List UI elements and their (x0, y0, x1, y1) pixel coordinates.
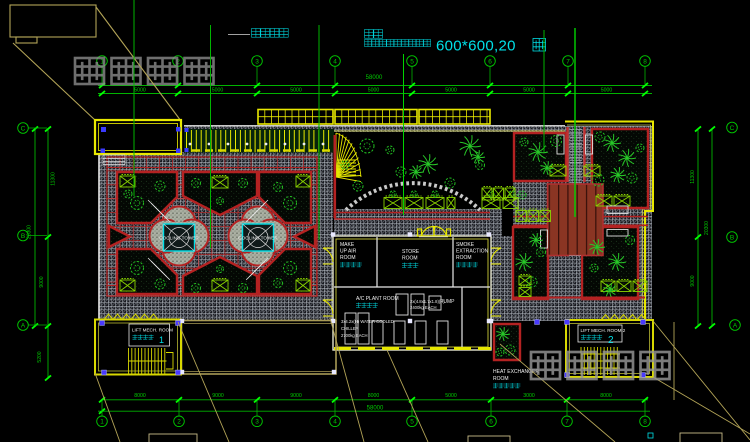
svg-text:9000: 9000 (290, 393, 302, 399)
svg-text:5000: 5000 (134, 88, 146, 94)
svg-text:58000: 58000 (367, 406, 384, 412)
svg-text:20300: 20300 (704, 221, 710, 235)
svg-text:6: 6 (488, 58, 492, 65)
svg-text:600*600,20: 600*600,20 (436, 38, 516, 55)
svg-text:LIFT MECH. ROOM: LIFT MECH. ROOM (132, 328, 173, 333)
svg-text:9000: 9000 (39, 276, 45, 287)
svg-text:MAKE: MAKE (340, 242, 355, 248)
svg-text:5000: 5000 (601, 88, 613, 94)
svg-text:2400kg EACH: 2400kg EACH (410, 305, 437, 310)
svg-text:COOLING TOWER: COOLING TOWER (159, 236, 199, 241)
svg-text:5000: 5000 (523, 88, 535, 94)
svg-text:1: 1 (100, 419, 104, 426)
svg-text:ROOM: ROOM (340, 255, 356, 261)
svg-text:5000: 5000 (445, 393, 457, 399)
svg-text:5000: 5000 (290, 88, 302, 94)
svg-text:1: 1 (159, 335, 164, 345)
svg-text:ROOM: ROOM (456, 255, 472, 261)
svg-text:C: C (730, 125, 735, 132)
svg-text:5000: 5000 (445, 88, 457, 94)
svg-text:5000: 5000 (212, 88, 224, 94)
svg-text:4: 4 (333, 58, 337, 65)
svg-text:8: 8 (643, 58, 647, 65)
svg-text:C: C (21, 125, 26, 132)
svg-text:2: 2 (177, 419, 181, 426)
svg-text:A: A (21, 322, 26, 329)
svg-text:8000: 8000 (600, 393, 612, 399)
svg-text:ROOM: ROOM (493, 376, 509, 382)
svg-text:2: 2 (608, 335, 614, 346)
svg-text:SMOKE: SMOKE (456, 242, 475, 248)
svg-text:8000: 8000 (368, 393, 380, 399)
svg-text:8: 8 (643, 419, 647, 426)
svg-text:COOLING TOWER: COOLING TOWER (238, 236, 278, 241)
svg-text:B: B (21, 233, 25, 240)
svg-text:A: A (733, 322, 738, 329)
svg-text:11300: 11300 (690, 170, 696, 184)
svg-text:11300: 11300 (51, 172, 57, 186)
svg-text:5: 5 (410, 58, 414, 65)
svg-text:3: 3 (255, 419, 259, 426)
svg-text:3: 3 (255, 58, 259, 65)
svg-text:9000: 9000 (212, 393, 224, 399)
svg-text:5: 5 (410, 419, 414, 426)
svg-text:5000: 5000 (368, 88, 380, 94)
svg-text:3x4.2x(H) WATER COOLED: 3x4.2x(H) WATER COOLED (341, 319, 394, 324)
svg-text:LIFT MECH. ROOM 2: LIFT MECH. ROOM 2 (581, 328, 626, 333)
svg-text:7: 7 (565, 419, 569, 426)
svg-text:B: B (730, 234, 734, 241)
svg-text:STORE: STORE (402, 249, 420, 255)
svg-text:5200: 5200 (37, 351, 43, 362)
svg-text:7: 7 (566, 58, 570, 65)
svg-text:6: 6 (489, 419, 493, 426)
svg-text:EXTRACTION: EXTRACTION (456, 249, 489, 255)
svg-text:3000: 3000 (523, 393, 535, 399)
svg-text:8000: 8000 (134, 393, 146, 399)
svg-text:A/C PLANT ROOM: A/C PLANT ROOM (356, 296, 399, 302)
svg-text:58000: 58000 (366, 75, 383, 81)
svg-text:UP AIR: UP AIR (340, 249, 357, 255)
svg-text:ROOM: ROOM (402, 256, 418, 262)
svg-text:9000: 9000 (690, 275, 696, 286)
svg-text:PUMP: PUMP (440, 299, 455, 305)
svg-text:4: 4 (333, 419, 337, 426)
